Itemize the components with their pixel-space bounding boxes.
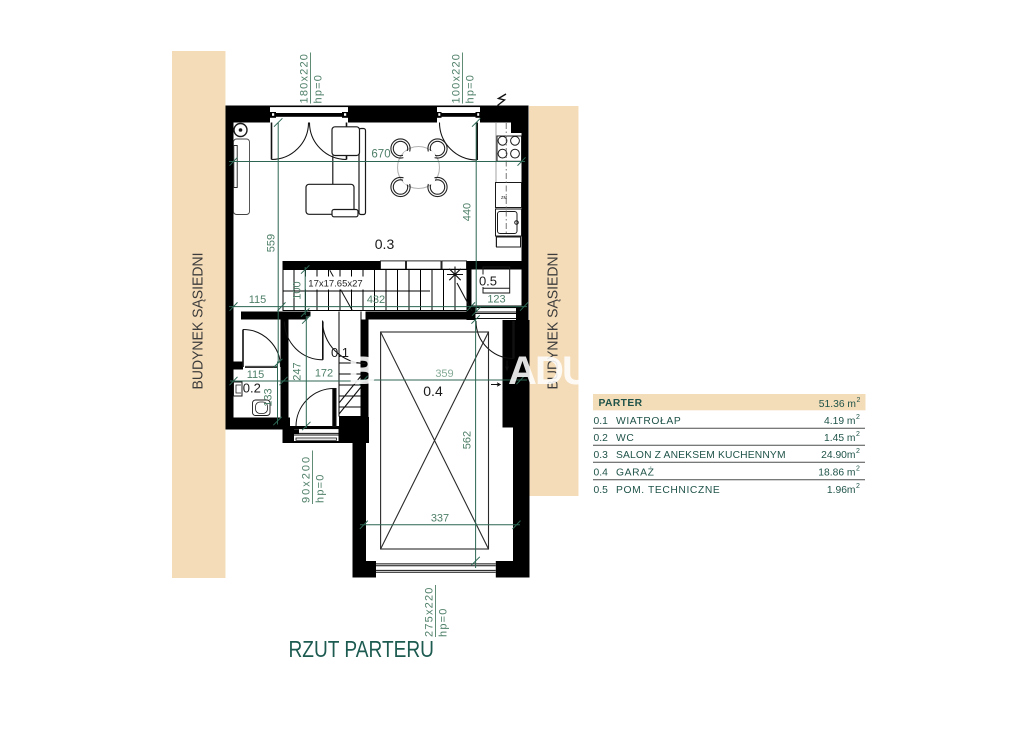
svg-text:2: 2 [856, 414, 860, 421]
svg-text:670: 670 [371, 149, 390, 161]
svg-text:1.45 m: 1.45 m [824, 433, 855, 444]
svg-text:51.36 m: 51.36 m [819, 399, 856, 410]
svg-text:A: A [508, 349, 537, 393]
svg-text:440: 440 [461, 203, 473, 221]
svg-text:275x220: 275x220 [424, 586, 436, 637]
svg-text:zм: zм [501, 195, 508, 201]
svg-text:WIATROŁAP: WIATROŁAP [616, 416, 681, 427]
svg-text:GARAŻ: GARAŻ [616, 465, 654, 478]
svg-text:WC: WC [616, 433, 634, 444]
svg-text:1.96m: 1.96m [827, 485, 856, 496]
svg-text:U: U [562, 349, 591, 393]
svg-text:180x220: 180x220 [299, 53, 311, 104]
svg-text:115: 115 [247, 369, 265, 381]
svg-text:559: 559 [265, 234, 277, 252]
svg-text:100x220: 100x220 [451, 53, 463, 104]
svg-text:2: 2 [856, 448, 860, 455]
svg-text:0.2: 0.2 [594, 433, 609, 444]
svg-text:359: 359 [435, 368, 453, 380]
svg-text:hp=0: hp=0 [313, 74, 325, 104]
svg-text:0.3: 0.3 [594, 450, 609, 461]
svg-text:hp=0: hp=0 [465, 74, 477, 104]
svg-text:RZUT PARTERU: RZUT PARTERU [289, 636, 435, 662]
svg-text:133: 133 [262, 388, 274, 406]
svg-text:17x17.65x27: 17x17.65x27 [308, 279, 362, 290]
svg-text:hp=0: hp=0 [438, 607, 450, 637]
svg-text:SALON Z ANEKSEM KUCHENNYM: SALON Z ANEKSEM KUCHENNYM [616, 450, 786, 461]
svg-text:0.5: 0.5 [479, 274, 497, 289]
svg-text:247: 247 [291, 362, 303, 380]
svg-text:2: 2 [857, 397, 861, 404]
svg-text:D: D [535, 349, 564, 393]
svg-text:123: 123 [487, 294, 505, 306]
svg-text:90x200: 90x200 [301, 455, 313, 503]
svg-text:0.4: 0.4 [594, 467, 609, 478]
svg-text:100: 100 [291, 281, 303, 299]
svg-text:18.86 m: 18.86 m [818, 467, 855, 478]
svg-text:172: 172 [315, 368, 333, 380]
svg-text:PARTER: PARTER [599, 398, 643, 409]
svg-text:0.2: 0.2 [243, 381, 261, 396]
svg-text:337: 337 [431, 513, 449, 525]
svg-text:432: 432 [367, 294, 385, 306]
svg-text:562: 562 [461, 431, 473, 449]
svg-text:0.1: 0.1 [594, 416, 609, 427]
svg-text:BUDYNEK SĄSIEDNI: BUDYNEK SĄSIEDNI [190, 253, 206, 390]
svg-text:24.90m: 24.90m [821, 450, 855, 461]
svg-text:0.1: 0.1 [331, 345, 349, 360]
svg-text:0.4: 0.4 [423, 383, 443, 399]
svg-text:4.19 m: 4.19 m [824, 416, 855, 427]
svg-text:B: B [348, 349, 377, 393]
svg-text:hp=0: hp=0 [315, 473, 327, 503]
svg-text:0.3: 0.3 [375, 236, 395, 252]
svg-text:2: 2 [856, 431, 860, 438]
svg-text:2: 2 [856, 465, 860, 472]
svg-text:2: 2 [856, 483, 860, 490]
svg-text:POM. TECHNICZNE: POM. TECHNICZNE [616, 485, 720, 496]
svg-text:0.5: 0.5 [594, 485, 609, 496]
svg-text:115: 115 [249, 294, 267, 306]
